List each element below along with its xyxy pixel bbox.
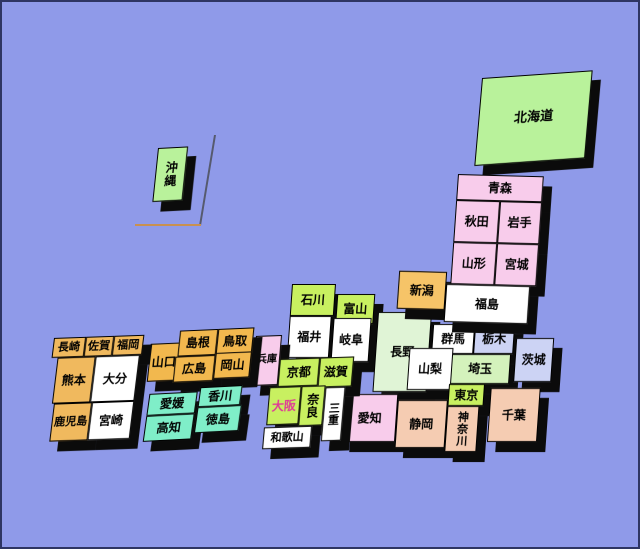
prefecture-label: 福岡 xyxy=(116,339,140,351)
prefecture-tokyo[interactable]: 東京 xyxy=(447,384,485,406)
prefecture-label: 山口 xyxy=(151,355,176,369)
prefecture-fukuoka[interactable]: 福岡 xyxy=(112,335,145,356)
prefecture-label: 岐阜 xyxy=(339,334,364,347)
prefecture-label: 茨城 xyxy=(521,354,546,367)
prefecture-label: 宮崎 xyxy=(98,414,124,427)
prefecture-label: 京都 xyxy=(286,366,311,379)
prefecture-label: 広島 xyxy=(181,362,206,376)
prefecture-label: 兵庫 xyxy=(256,355,277,366)
prefecture-label: 大分 xyxy=(102,372,128,385)
prefecture-label: 高知 xyxy=(156,421,182,435)
prefecture-kumamoto[interactable]: 熊本 xyxy=(52,356,96,403)
prefecture-kagoshima[interactable]: 鹿児島 xyxy=(49,402,92,441)
prefecture-label: 長崎 xyxy=(57,341,81,353)
prefecture-label: 静岡 xyxy=(409,418,434,431)
prefecture-yamagata[interactable]: 山形 xyxy=(450,242,497,285)
prefecture-label: 鹿児島 xyxy=(53,416,88,429)
prefecture-kochi[interactable]: 高知 xyxy=(143,413,195,442)
prefecture-chiba[interactable]: 千葉 xyxy=(487,388,541,442)
prefecture-label: 熊本 xyxy=(61,373,87,386)
prefecture-label: 山形 xyxy=(461,257,486,270)
prefecture-label: 鳥取 xyxy=(222,334,247,348)
prefecture-miyazaki[interactable]: 宮崎 xyxy=(87,401,134,440)
prefecture-label: 秋田 xyxy=(464,215,489,228)
prefecture-label: 島根 xyxy=(185,336,210,350)
prefecture-label: 栃木 xyxy=(482,333,507,346)
prefecture-osaka[interactable]: 大阪 xyxy=(266,386,301,425)
prefecture-tochigi[interactable]: 栃木 xyxy=(473,324,515,354)
prefecture-label: 愛知 xyxy=(357,412,382,425)
prefecture-label: 新潟 xyxy=(409,284,434,297)
prefecture-label: 埼玉 xyxy=(468,363,493,376)
prefecture-akita[interactable]: 秋田 xyxy=(453,200,500,243)
prefecture-label: 東京 xyxy=(454,389,479,402)
prefecture-label: 神奈川 xyxy=(455,411,469,447)
okinawa-boundary-line-diagonal xyxy=(199,135,216,226)
prefecture-shimane[interactable]: 島根 xyxy=(177,329,218,357)
prefecture-hokkaido[interactable]: 北海道 xyxy=(474,70,592,166)
prefecture-hiroshima[interactable]: 広島 xyxy=(173,355,216,383)
prefecture-ishikawa[interactable]: 石川 xyxy=(290,284,336,316)
prefecture-iwate[interactable]: 岩手 xyxy=(497,201,542,244)
prefecture-okayama[interactable]: 岡山 xyxy=(213,351,252,379)
prefecture-kanagawa[interactable]: 神奈川 xyxy=(444,406,479,452)
prefecture-label: 滋賀 xyxy=(323,365,348,378)
prefecture-label: 沖縄 xyxy=(163,161,178,188)
prefecture-label: 岡山 xyxy=(220,358,245,372)
prefecture-label: 山梨 xyxy=(418,363,443,376)
prefecture-label: 千葉 xyxy=(501,409,526,422)
prefecture-gifu[interactable]: 岐阜 xyxy=(331,318,372,362)
prefecture-label: 佐賀 xyxy=(87,340,111,352)
prefecture-miyagi[interactable]: 宮城 xyxy=(494,243,539,286)
prefecture-shizuoka[interactable]: 静岡 xyxy=(395,400,448,448)
prefecture-label: 石川 xyxy=(300,294,325,307)
prefecture-aomori[interactable]: 青森 xyxy=(456,174,544,202)
okinawa-boundary-line-horizontal xyxy=(135,224,201,226)
prefecture-label: 愛媛 xyxy=(159,397,185,411)
sea-background: 北海道沖縄石川富山福井岐阜長野群馬栃木茨城埼玉山梨東京神奈川千葉静岡愛知青森秋田… xyxy=(0,0,640,549)
prefecture-label: 青森 xyxy=(488,182,513,195)
prefecture-label: 三重 xyxy=(326,402,340,426)
prefecture-tokushima[interactable]: 徳島 xyxy=(194,405,242,433)
prefecture-okinawa[interactable]: 沖縄 xyxy=(152,146,188,202)
prefecture-oita[interactable]: 大分 xyxy=(90,355,140,403)
prefecture-shiga[interactable]: 滋賀 xyxy=(317,356,354,387)
prefecture-label: 大阪 xyxy=(271,399,296,412)
prefecture-saitama[interactable]: 埼玉 xyxy=(449,354,511,384)
prefecture-label: 富山 xyxy=(343,303,368,316)
prefecture-label: 奈良 xyxy=(304,393,319,419)
prefecture-ibaraki[interactable]: 茨城 xyxy=(513,338,554,382)
prefecture-kagawa[interactable]: 香川 xyxy=(198,385,243,407)
prefecture-label: 宮城 xyxy=(504,258,529,271)
prefecture-label: 岩手 xyxy=(507,216,532,229)
prefecture-label: 北海道 xyxy=(513,110,553,126)
prefecture-saga[interactable]: 佐賀 xyxy=(84,336,115,357)
prefecture-label: 和歌山 xyxy=(270,431,304,444)
prefecture-label: 福井 xyxy=(297,331,322,344)
prefecture-label: 群馬 xyxy=(441,333,466,346)
prefecture-label: 徳島 xyxy=(205,412,231,426)
prefecture-fukui[interactable]: 福井 xyxy=(287,316,332,358)
prefecture-nara[interactable]: 奈良 xyxy=(298,385,326,426)
prefecture-fukushima[interactable]: 福島 xyxy=(444,284,531,324)
prefecture-kyoto[interactable]: 京都 xyxy=(278,358,321,387)
prefecture-aichi[interactable]: 愛知 xyxy=(341,394,398,442)
prefecture-label: 香川 xyxy=(207,389,233,403)
prefecture-label: 福島 xyxy=(474,297,499,310)
prefecture-nagasaki[interactable]: 長崎 xyxy=(52,337,87,358)
prefecture-niigata[interactable]: 新潟 xyxy=(397,271,448,310)
prefecture-wakayama[interactable]: 和歌山 xyxy=(262,426,312,450)
prefecture-yamanashi[interactable]: 山梨 xyxy=(407,348,454,390)
prefecture-ehime[interactable]: 愛媛 xyxy=(146,391,197,416)
